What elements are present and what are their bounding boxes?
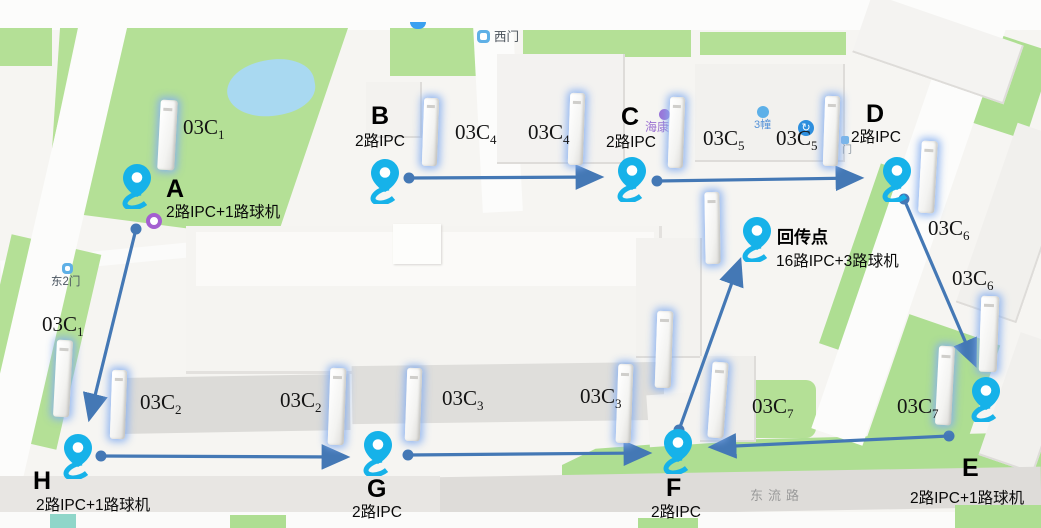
device-label-base: 03C [140, 390, 175, 414]
device-label-sub: 2 [315, 400, 322, 415]
location-pin-icon [658, 428, 698, 474]
location-pin-icon [358, 430, 398, 476]
device-label: 03C3 [580, 386, 622, 410]
location-pin-icon [877, 156, 917, 202]
device-label-sub: 6 [987, 278, 994, 293]
point-label-e: E [962, 456, 979, 481]
device-label: 03C1 [183, 117, 225, 141]
device-label: 03C2 [140, 392, 182, 416]
camera-pole[interactable] [110, 370, 127, 439]
point-label-f: F [666, 476, 681, 501]
location-pin-icon [612, 156, 652, 202]
device-label: 03C6 [928, 218, 970, 242]
device-label-base: 03C [703, 126, 738, 150]
location-pin-icon [117, 163, 157, 209]
point-desc-b: 2路IPC [355, 133, 405, 150]
pin-relay[interactable] [737, 216, 777, 262]
device-label-sub: 4 [490, 132, 497, 147]
pin-d[interactable] [877, 156, 917, 202]
device-label: 03C7 [897, 396, 939, 420]
device-label-base: 03C [580, 384, 615, 408]
point-desc-d: 2路IPC [851, 129, 901, 146]
location-pin-icon [58, 433, 98, 479]
device-label-sub: 7 [932, 406, 939, 421]
device-label: 03C4 [455, 122, 497, 146]
camera-pole[interactable] [704, 192, 720, 264]
point-label-a: A [166, 177, 184, 202]
relay-point-desc: 16路IPC+3路球机 [776, 253, 899, 270]
point-desc-c: 2路IPC [606, 134, 656, 151]
camera-pole[interactable] [979, 296, 1000, 373]
arrow-h-to-g [101, 456, 344, 457]
camera-pole[interactable] [328, 368, 347, 446]
device-label-base: 03C [897, 394, 932, 418]
camera-pole[interactable] [422, 98, 439, 166]
location-pin-icon [966, 376, 1006, 422]
device-label: 03C1 [42, 314, 84, 338]
device-label-sub: 5 [811, 138, 818, 153]
device-label: 03C4 [528, 122, 570, 146]
pin-a[interactable] [117, 163, 157, 209]
campus-camera-deployment-map: { "map_labels": { "west_gate": "西门", "ea… [0, 0, 1041, 528]
device-label-base: 03C [442, 386, 477, 410]
device-label-sub: 4 [563, 132, 570, 147]
camera-pole[interactable] [823, 96, 840, 166]
point-label-g: G [367, 477, 386, 502]
point-desc-h: 2路IPC+1路球机 [36, 497, 150, 514]
arrow-b-to-c [409, 177, 598, 178]
point-desc-g: 2路IPC [352, 504, 402, 521]
location-pin-icon [737, 216, 777, 262]
camera-pole[interactable] [405, 368, 423, 441]
location-pin-icon [365, 158, 405, 204]
device-label-sub: 1 [218, 127, 225, 142]
pin-h[interactable] [58, 433, 98, 479]
device-label-base: 03C [280, 388, 315, 412]
device-label-base: 03C [952, 266, 987, 290]
arrow-c-to-d [657, 178, 858, 181]
point-label-h: H [33, 469, 51, 494]
point-label-d: D [866, 102, 884, 127]
device-label-base: 03C [776, 126, 811, 150]
pin-e[interactable] [966, 376, 1006, 422]
device-label-base: 03C [752, 394, 787, 418]
device-label-sub: 3 [477, 398, 484, 413]
arrow-e-to-f [714, 436, 949, 447]
device-label: 03C5 [776, 128, 818, 152]
device-label-sub: 6 [963, 228, 970, 243]
device-label-sub: 1 [77, 324, 84, 339]
device-label: 03C6 [952, 268, 994, 292]
arrow-start-dot [403, 450, 414, 461]
pin-f[interactable] [658, 428, 698, 474]
camera-pole[interactable] [568, 93, 586, 165]
device-label: 03C2 [280, 390, 322, 414]
device-label-sub: 5 [738, 138, 745, 153]
arrow-start-dot [404, 173, 415, 184]
device-label: 03C3 [442, 388, 484, 412]
device-label: 03C7 [752, 396, 794, 420]
device-label: 03C5 [703, 128, 745, 152]
arrow-start-dot [944, 431, 955, 442]
device-label-sub: 2 [175, 402, 182, 417]
point-label-b: B [371, 104, 389, 129]
point-desc-f: 2路IPC [651, 504, 701, 521]
device-label-base: 03C [928, 216, 963, 240]
arrow-start-dot [131, 224, 142, 235]
arrow-g-to-f [408, 453, 646, 455]
point-desc-e: 2路IPC+1路球机 [910, 490, 1024, 507]
device-label-base: 03C [528, 120, 563, 144]
device-label-base: 03C [455, 120, 490, 144]
arrow-start-dot [652, 176, 663, 187]
pin-g[interactable] [358, 430, 398, 476]
point-desc-a: 2路IPC+1路球机 [166, 204, 280, 221]
device-label-base: 03C [42, 312, 77, 336]
pin-b[interactable] [365, 158, 405, 204]
camera-pole[interactable] [668, 97, 685, 168]
camera-pole[interactable] [655, 311, 674, 389]
pin-c[interactable] [612, 156, 652, 202]
device-label-base: 03C [183, 115, 218, 139]
device-label-sub: 7 [787, 406, 794, 421]
point-label-c: C [621, 105, 639, 130]
relay-point-label: 回传点 [777, 229, 828, 246]
device-label-sub: 3 [615, 396, 622, 411]
